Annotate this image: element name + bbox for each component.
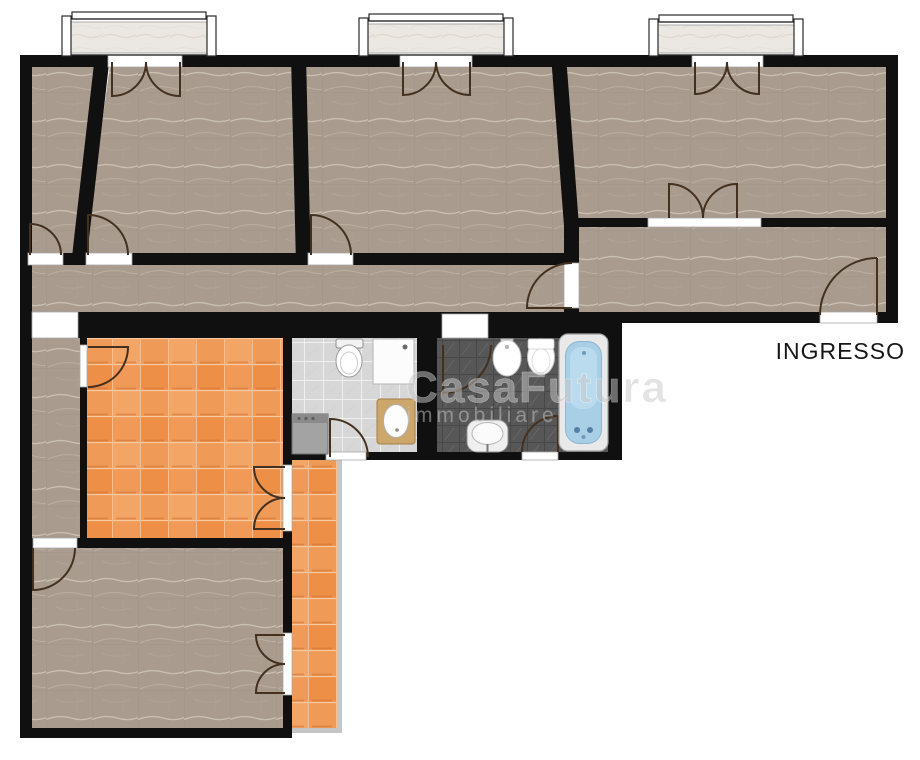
wall-right (886, 55, 898, 323)
threshold-room-top-second (86, 253, 132, 265)
threshold-hall-entrance (564, 263, 579, 308)
room-bottom-left-floor (30, 548, 283, 728)
windows (62, 12, 803, 56)
entrance-hall-floor (577, 226, 886, 313)
entrance-label: INGRESSO (776, 338, 905, 364)
watermark: CasaFutura immobiliare (406, 363, 668, 427)
threshold-hall-left-corridor (32, 312, 78, 338)
threshold-bath-dark (442, 314, 488, 338)
window-3 (649, 15, 803, 56)
wall-middle-band (20, 312, 622, 338)
wall-bottom (20, 728, 292, 738)
balcony-edge-right (337, 458, 342, 733)
kitchen-floor (87, 338, 283, 538)
threshold-room-top-left (28, 253, 63, 265)
window-2 (359, 14, 513, 56)
threshold-room-top-right (648, 218, 761, 227)
left-corridor-floor (28, 338, 80, 538)
room-top-right-floor (565, 65, 888, 218)
hallway-floor (30, 262, 567, 313)
balcony-floor (292, 460, 337, 728)
floor-plan-drawing: CasaFutura immobiliare INGRESSO (0, 0, 920, 760)
wall-left (20, 55, 32, 738)
threshold-room-top-third (308, 253, 353, 265)
threshold-kitchen (80, 345, 87, 387)
floor-plan: CasaFutura immobiliare INGRESSO (0, 0, 920, 760)
toilet-icon (336, 339, 363, 377)
threshold-entry-door (820, 312, 877, 323)
room-top-third-floor (306, 65, 567, 255)
watermark-line-2: immobiliare (406, 404, 557, 427)
threshold-room-bottom-left (33, 538, 77, 548)
threshold-bath-light (326, 452, 366, 460)
balcony-edge-bottom (292, 728, 342, 733)
window-1 (62, 12, 216, 56)
threshold-bath-dark-south (522, 452, 558, 460)
washing-machine-icon (292, 414, 328, 454)
